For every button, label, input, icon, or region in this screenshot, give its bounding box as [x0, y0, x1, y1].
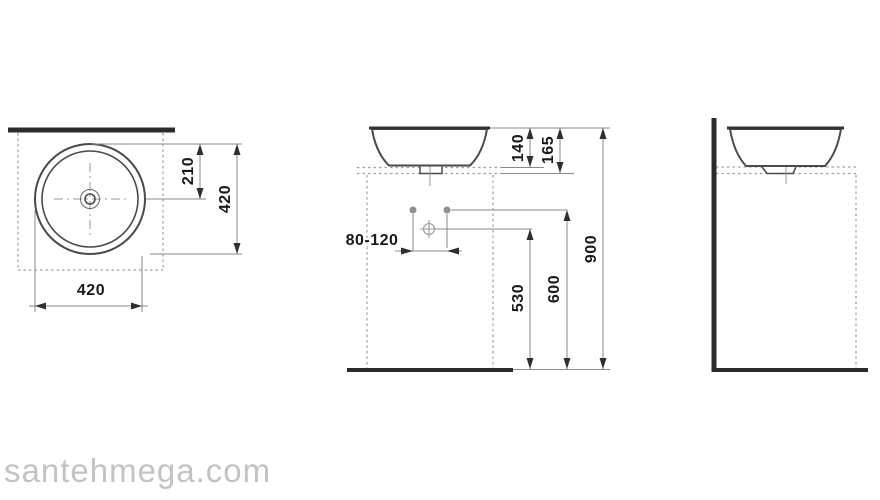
side-counter-dashed	[716, 167, 858, 368]
basin-bowl-side	[730, 129, 841, 166]
dim-label-top-depth: 420	[218, 185, 234, 213]
front-counter-dashed	[357, 168, 502, 369]
supply-point-left	[410, 207, 417, 214]
centerline-cross	[54, 163, 126, 235]
dim-label-drain-range: 80-120	[346, 233, 399, 249]
dim-label-top-width: 420	[77, 283, 105, 299]
basin-outer-rim	[35, 144, 145, 254]
front-view	[347, 128, 610, 370]
technical-drawing-page: 210 420 420 140 165 900 600 530 80-120 s…	[0, 0, 880, 500]
dim-label-center-offset: 210	[181, 157, 197, 185]
dim-label-rim-height: 165	[541, 136, 557, 164]
dim-label-drain-height: 530	[511, 284, 527, 312]
side-view	[712, 118, 868, 372]
supply-point-right	[444, 207, 451, 214]
dim-label-total-height: 900	[584, 235, 600, 263]
top-view	[8, 130, 242, 312]
watermark: santehmega.com	[4, 454, 271, 487]
basin-bowl-front	[372, 129, 487, 166]
dim-label-supply-height: 600	[547, 275, 563, 303]
side-drain-trap	[762, 167, 796, 174]
dim-label-basin-height: 140	[511, 134, 527, 162]
drawing-canvas	[0, 0, 880, 500]
